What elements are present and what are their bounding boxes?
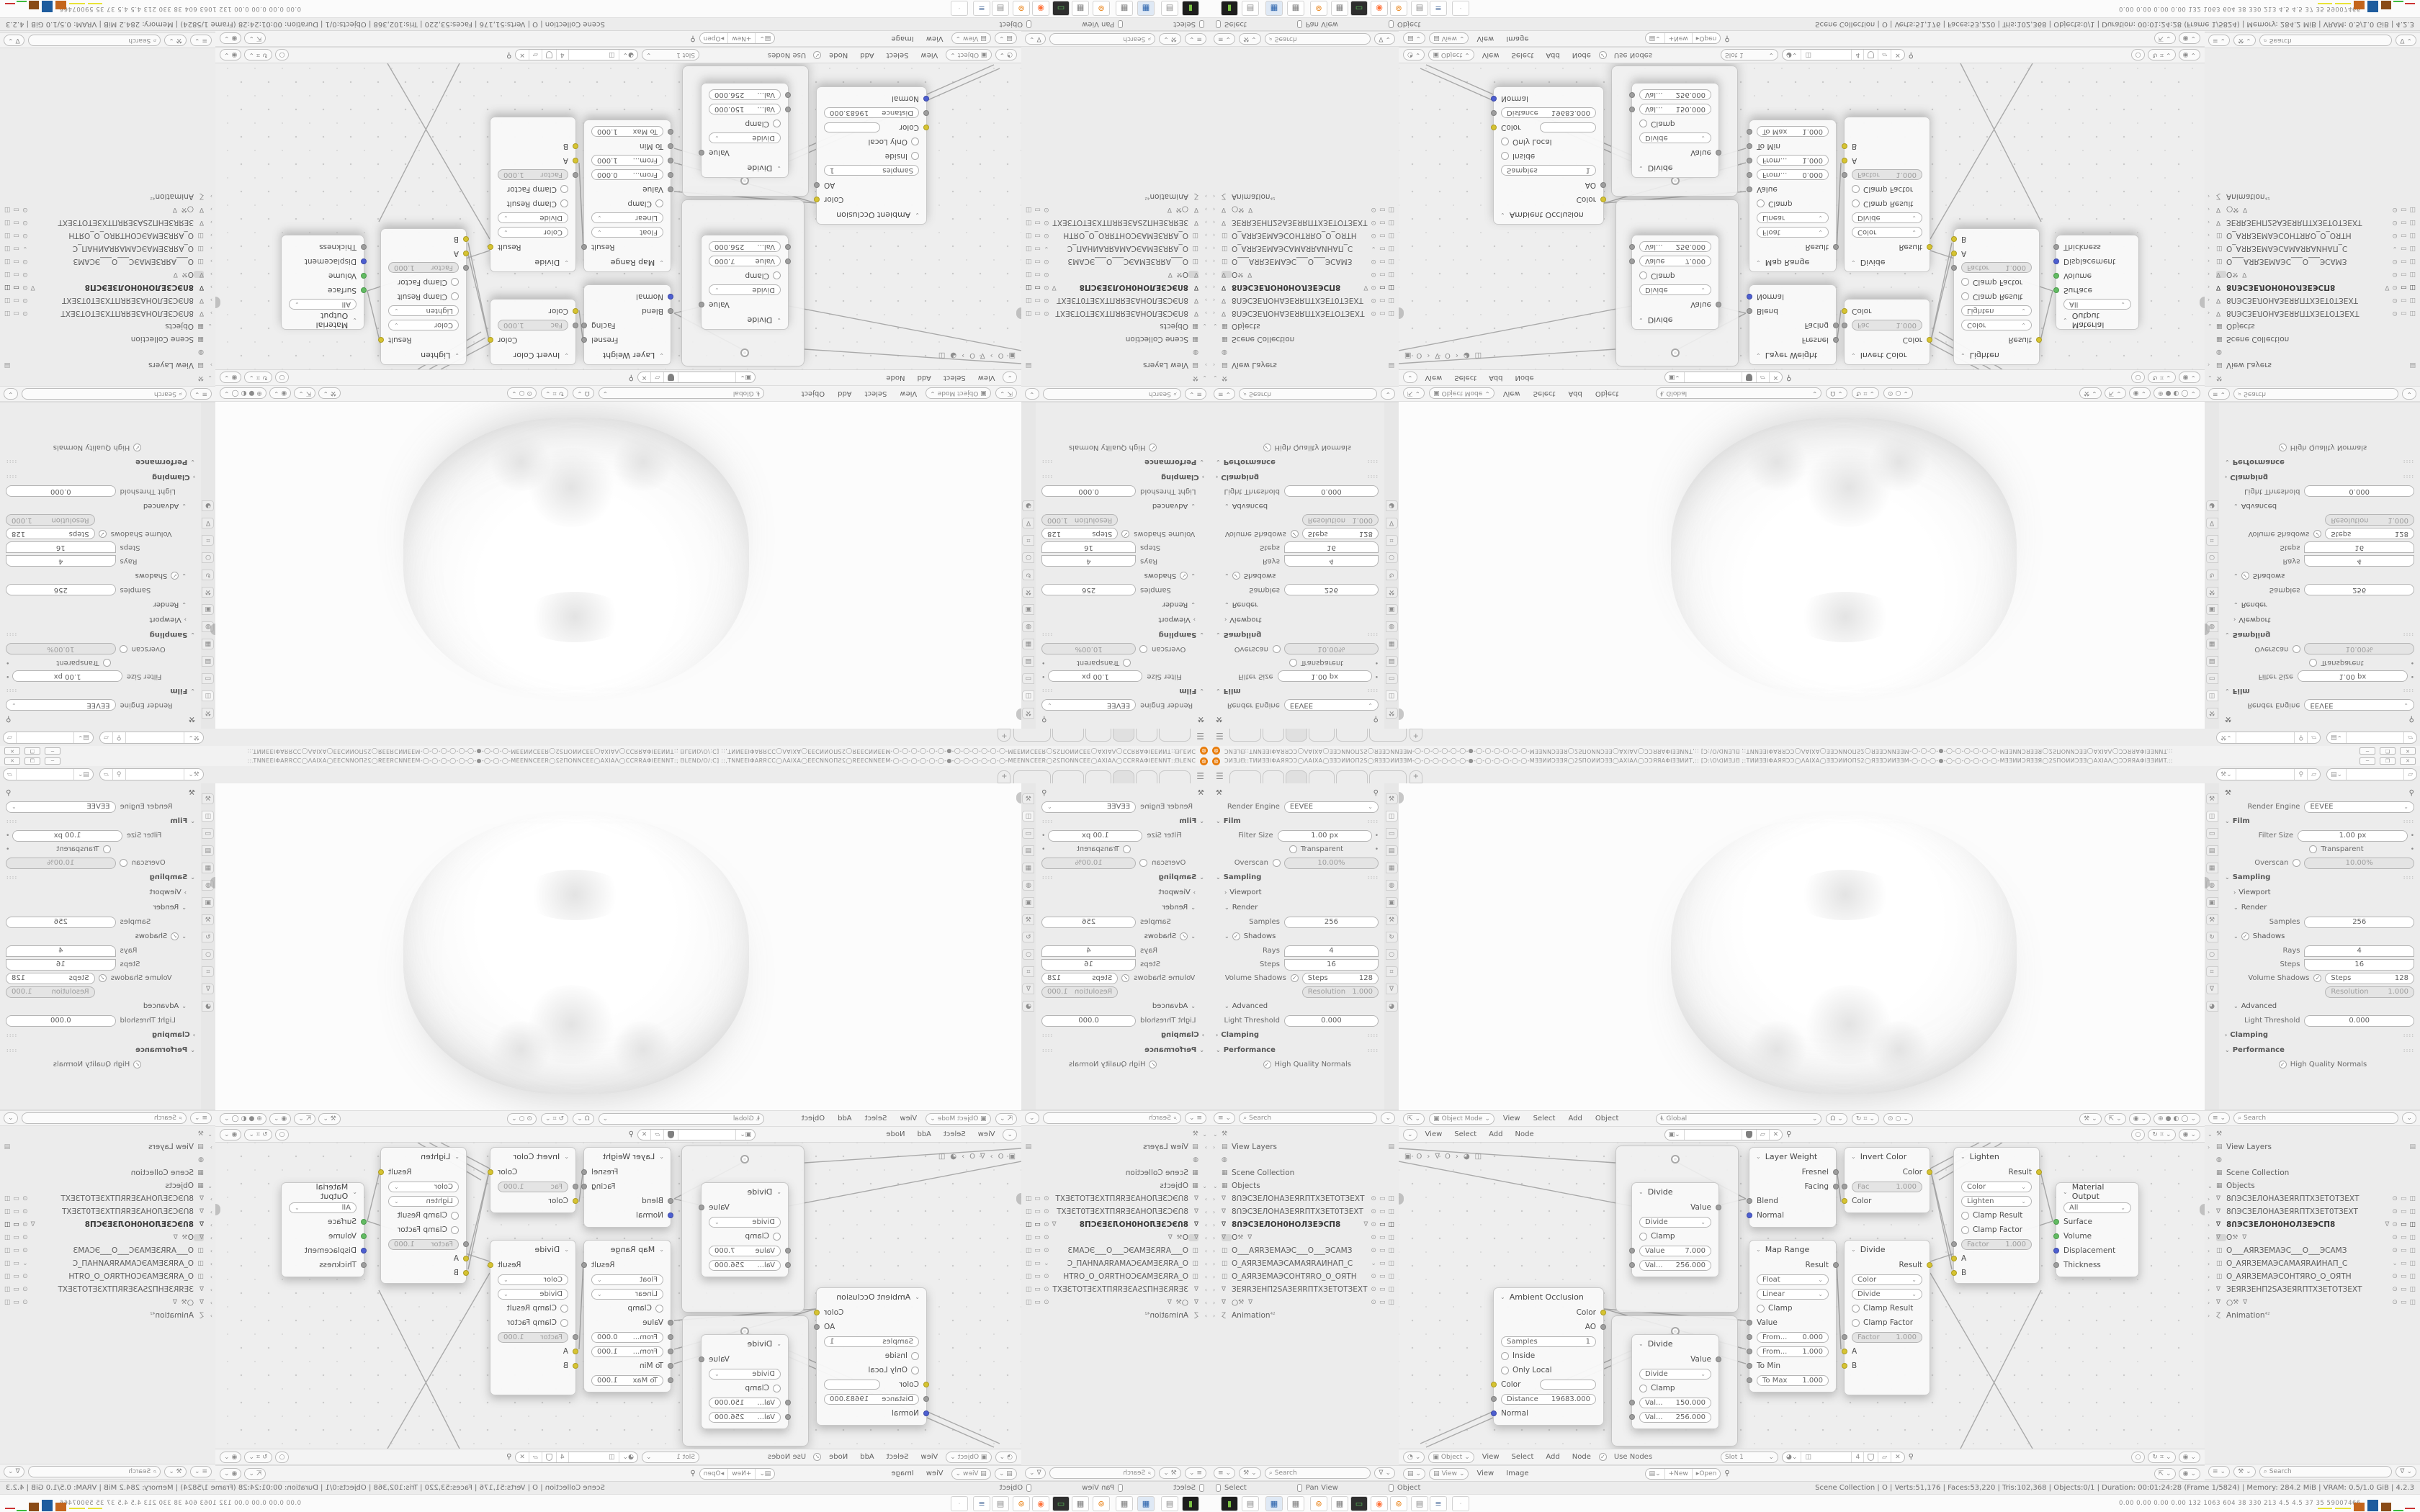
menu-view[interactable]: View xyxy=(1425,1130,1443,1138)
camera-row[interactable]: › ◫O_AЯRЗЕМАЭСОНТЯRО_O_ОЯТН ⊙▭◫ xyxy=(0,229,215,242)
workspace-tab[interactable] xyxy=(1369,770,1407,783)
node-lighten[interactable]: ⌄Lighten Result Color⌄ Lighten⌄ Clamp Re… xyxy=(380,228,467,365)
clamp-checkbox[interactable] xyxy=(1639,120,1647,128)
monitor-app-icon[interactable]: ▭ xyxy=(1350,1496,1368,1511)
save64-app-icon[interactable]: ▦ xyxy=(1137,1,1155,16)
view-layers-row[interactable]: › ▤View Layers ▤ xyxy=(2205,359,2420,372)
resolution-field[interactable]: Resolution 1.000 xyxy=(2325,515,2414,526)
camera-row[interactable]: › ◫O___AЯRЗЕМАЭС___O___ЭСАМЗ ⊙▭◫ xyxy=(1021,1244,1210,1257)
transparent-checkbox[interactable] xyxy=(103,659,111,667)
material-selector[interactable]: ◕⌄ ◫ 4 ▱ ✕ xyxy=(1782,50,1905,61)
object-row-selected[interactable]: › ∇O ⚒∇ ⊙▭◫ xyxy=(0,1231,215,1244)
select-visibility-button[interactable]: ⚒⌄ xyxy=(2079,388,2102,400)
samples-field[interactable]: 256 xyxy=(6,917,116,928)
show-gizmo-button[interactable]: ⇱⌄ xyxy=(2105,1113,2126,1125)
material-selector[interactable]: ▣⌄ ▱ ✕ xyxy=(1664,1129,1783,1140)
pivot-button[interactable]: ⊙○⌄ xyxy=(507,1113,537,1125)
pin-icon[interactable]: ⚲ xyxy=(1909,1453,1914,1461)
calculator-app-icon[interactable]: ▦ xyxy=(1331,1496,1348,1511)
copy-icon[interactable]: ▱ xyxy=(2308,769,2320,780)
advanced-section[interactable]: ⌄ Advanced xyxy=(6,999,195,1014)
blender-app-icon[interactable]: ⊚ xyxy=(1093,1496,1110,1511)
camera-row[interactable]: › ◫O___AЯRЗЕМАЭС___O___ЭСАМЗ ⊙▭◫ xyxy=(0,255,215,268)
node-map-range[interactable]: ⌄Map Range Result Float⌄ Linear⌄ Clamp V… xyxy=(583,1240,671,1392)
film-section[interactable]: ⌄ Film:::: xyxy=(2225,814,2414,829)
sampling-section[interactable]: ⌄ Sampling:::: xyxy=(2225,870,2414,885)
objects-collection-row[interactable]: ⌄ ▦Objects xyxy=(2205,1179,2420,1192)
pin-icon[interactable]: ⚲ xyxy=(1041,715,1047,723)
select-visibility-button[interactable]: ⚒⌄ xyxy=(318,1113,341,1125)
snap-button[interactable]: ↻⌗⌄ xyxy=(2148,372,2175,384)
node-invert-color[interactable]: ⌄Invert Color Color Fac 1.000 Color xyxy=(490,299,576,365)
overscan-field[interactable]: 10.00% xyxy=(2304,858,2414,869)
render-subsection[interactable]: ⌄ Render xyxy=(2225,900,2414,915)
transparent-checkbox[interactable] xyxy=(1289,845,1297,853)
rays-field[interactable]: 4 xyxy=(6,945,116,957)
workspace-tab[interactable] xyxy=(1263,729,1284,742)
object-row[interactable]: › ∇8ՈЭСЗЕЛОНАЗЕЯRПТХЗЕТ0ТЗЕХТ ⊙▭◫ xyxy=(1021,294,1210,307)
sampling-section[interactable]: ⌄ Sampling:::: xyxy=(1041,627,1204,642)
steps-field[interactable]: 16 xyxy=(2304,959,2414,971)
animation-row[interactable]: › ⱿAnimation ⁴² xyxy=(1021,1309,1210,1322)
operation-select[interactable]: Divide⌄ xyxy=(1639,285,1711,296)
steps-field[interactable]: 16 xyxy=(1041,542,1136,554)
blender-app-icon[interactable]: ⊚ xyxy=(1390,1,1407,16)
mode-select[interactable]: ▣Object Mode⌄ xyxy=(1429,388,1494,400)
steps-field[interactable]: 16 xyxy=(1041,959,1136,971)
node-material-output[interactable]: ⌄Material Output All⌄ Surface Volume Dis… xyxy=(281,1182,364,1277)
copy-icon[interactable]: ▱ xyxy=(2404,732,2416,743)
viewport-subsection[interactable]: › Viewport xyxy=(1216,612,1379,627)
minimize-button[interactable]: ─ xyxy=(2359,757,2375,765)
viewlayer-id-selector[interactable]: ▤⌄ ▱ xyxy=(2326,768,2417,780)
camera-row[interactable]: › ◫O_AЯRЗЕМАЭСОНТЯRО_O_ОЯТН ⊙▭◫ xyxy=(2205,1270,2420,1283)
open-image-button[interactable]: ▸ Open xyxy=(1693,34,1721,44)
editor-type-button[interactable]: ◔⌄ xyxy=(995,50,1017,61)
properties-tab-strip[interactable]: ⚒◫▭ ▤▦◍ ▣⚒↻ ○⌗∇ ◕ xyxy=(201,783,215,1110)
rays-field[interactable]: 4 xyxy=(1041,945,1136,957)
performance-section[interactable]: ⌄ Performance:::: xyxy=(1216,1043,1379,1058)
filter-toggle[interactable]: ⌄ xyxy=(1025,1112,1039,1124)
region-toggle[interactable] xyxy=(2200,1204,2205,1215)
object-row[interactable]: › ∇8ՈЭСЗЕЛОНАЗЕЯRПТХЗЕТОТЗЕХТ ⊙▭◫ xyxy=(0,307,215,320)
camera-row[interactable]: › ◫O_AЯRЗЕМАЭСОНТЯRО_O_ОЯТН ⊙▭◫ xyxy=(1210,1270,1399,1283)
display-mode-button[interactable]: ≡⌄ xyxy=(1185,1467,1206,1479)
pin-icon[interactable]: ⚲ xyxy=(2295,769,2308,780)
snap-button[interactable]: ↻⌗⌄ xyxy=(244,372,272,384)
firefox-app-icon[interactable]: ◉ xyxy=(1032,1,1049,16)
copy-icon[interactable]: ▱ xyxy=(4,769,16,780)
overscan-field[interactable]: 10.00% xyxy=(2304,644,2414,655)
animation-row[interactable]: › ⱿAnimation ⁴² xyxy=(1210,190,1399,203)
funnel-filter-button[interactable]: ∇⌄ xyxy=(1374,1467,1395,1479)
pin-icon[interactable]: ⚲ xyxy=(1373,715,1379,723)
volume-steps-field[interactable]: Steps 128 xyxy=(2325,973,2414,984)
node-divide-2[interactable]: ⌄Divide Result Color⌄ Divide⌄ Clamp Resu… xyxy=(490,117,576,272)
snap-toggle[interactable]: Ω⌄ xyxy=(1826,388,1847,400)
material-selector[interactable]: ▣⌄ ▱ ✕ xyxy=(1664,372,1783,384)
node-map-range[interactable]: ⌄Map Range Result Float⌄ Linear⌄ Clamp V… xyxy=(1749,1240,1837,1392)
overscan-field[interactable]: 10.00% xyxy=(1284,858,1379,869)
workspace-tab-active[interactable] xyxy=(1113,729,1134,742)
resolution-field[interactable]: Resolution 1.000 xyxy=(1302,515,1379,526)
menu-view[interactable]: View xyxy=(1425,374,1443,382)
animation-row[interactable]: › ⱿAnimation ⁴² xyxy=(1210,1309,1399,1322)
overscan-checkbox[interactable] xyxy=(2293,859,2300,867)
node-divide-1[interactable]: ⌄Divide Value Divide⌄ Clamp Value 7.000 … xyxy=(701,235,789,330)
clamping-section[interactable]: › Clamping:::: xyxy=(2225,1027,2414,1043)
fake-user-toggle[interactable] xyxy=(1868,1454,1874,1461)
funnel-filter-button[interactable]: ∇⌄ xyxy=(1025,33,1046,45)
notepad-app-icon[interactable]: ▤ xyxy=(1411,1496,1428,1511)
proportional-edit-button[interactable]: ↻⌗⌄ xyxy=(1852,1113,1879,1125)
region-toggle[interactable] xyxy=(210,877,215,888)
workspace-tab[interactable] xyxy=(1085,729,1111,742)
node-divide-1b[interactable]: ⌄Divide Value Divide⌄ Clamp Val... 150.0… xyxy=(701,83,789,178)
monitor-app-icon[interactable]: ▭ xyxy=(1052,1496,1070,1511)
maximize-button[interactable]: ❐ xyxy=(2380,757,2396,765)
copy-icon[interactable]: ▱ xyxy=(650,1130,663,1140)
display-mode-button[interactable]: ≡⌄ xyxy=(1185,33,1206,45)
node-ambient-occlusion[interactable]: ⌄Ambient Occlusion Color AO Samples 1 In… xyxy=(1493,86,1604,225)
filter-size-field[interactable]: 1.00 px xyxy=(1278,671,1372,683)
minimize-button[interactable]: ─ xyxy=(45,747,60,755)
operation-select[interactable]: Divide⌄ xyxy=(1639,1369,1711,1380)
copy-icon[interactable]: ▱ xyxy=(1878,1452,1891,1462)
object-row[interactable]: › ∇○ ⚒∇ ⊙▭◫ xyxy=(1021,1296,1210,1309)
pivot-button[interactable]: ⊙○⌄ xyxy=(1883,388,1913,400)
camera-row[interactable]: › ◫O_AЯRЗЕМАЭСАМАЯRАИНАП_С ⌄▭◫ xyxy=(0,1257,215,1270)
menu-add[interactable]: Add xyxy=(917,374,931,382)
object-row-active[interactable]: › ∇8ՈЭСЗЕЛОН0НОЛЗЕЭСП8 ∇⊙▭◫ xyxy=(2205,1218,2420,1231)
menu-node[interactable]: Node xyxy=(1515,374,1534,382)
snap-toggle[interactable]: Ω⌄ xyxy=(573,1113,593,1125)
object-row[interactable]: › ∇8ՈЭСЗЕЛОНАЗЕЯRПТХЗЕТОТЗЕХТ ⊙▭◫ xyxy=(2205,1192,2420,1205)
add-workspace-button[interactable]: + xyxy=(998,729,1010,742)
pivot-button[interactable]: ⊙○⌄ xyxy=(507,388,537,400)
material-selector[interactable]: ◕⌄ ◫ 4 ▱ ✕ xyxy=(1782,1452,1905,1463)
node-divide-1[interactable]: ⌄Divide Value Divide⌄ Clamp Value 7.000 … xyxy=(701,1182,789,1277)
camera-row[interactable]: › ◫O___AЯRЗЕМАЭС___O___ЭСАМЗ ⊙▭◫ xyxy=(0,1244,215,1257)
object-row[interactable]: › ∇○ ⚒∇ ⊙▭◫ xyxy=(0,1296,215,1309)
clamping-section[interactable]: › Clamping:::: xyxy=(6,469,195,485)
snap-toggle[interactable]: Ω⌄ xyxy=(573,388,593,400)
material-selector[interactable]: ◕⌄ ◫ 4 ▱ ✕ xyxy=(515,50,638,61)
properties-tab-strip[interactable]: ⚒◫▭ ▤▦◍ ▣⚒↻ ○⌗∇ ◕ xyxy=(1384,783,1399,1110)
search-input[interactable]: ⌕Search xyxy=(1239,1112,1377,1124)
image-mode-select[interactable]: ▤View⌄ xyxy=(1429,1468,1469,1480)
samples-field[interactable]: 256 xyxy=(1284,585,1379,596)
fake-user-toggle[interactable] xyxy=(668,374,674,382)
samples-field[interactable]: 256 xyxy=(6,585,116,596)
viewport-subsection[interactable]: › Viewport xyxy=(1041,885,1204,900)
viewlayer-id-selector[interactable]: ▤⌄ ▱ xyxy=(3,732,94,744)
light-threshold-field[interactable]: 0.000 xyxy=(6,1015,116,1027)
notepad-app-icon[interactable]: ▤ xyxy=(992,1496,1009,1511)
filter-mode-button[interactable]: ⚒⌄ xyxy=(1239,1467,1261,1479)
terminal-app-icon[interactable]: ▮ xyxy=(1221,1496,1238,1511)
maximize-button[interactable]: ❐ xyxy=(24,747,40,755)
film-section[interactable]: ⌄ Film:::: xyxy=(1216,814,1379,829)
blend-select[interactable]: Lighten⌄ xyxy=(388,306,459,317)
unlink-button[interactable]: ✕ xyxy=(638,373,651,383)
viewport-subsection[interactable]: › Viewport xyxy=(2225,612,2414,627)
search-input[interactable]: ⌕Search xyxy=(1265,1467,1371,1479)
blender-app-icon[interactable]: ⊚ xyxy=(1310,1496,1327,1511)
object-row[interactable]: › ∇○ ⚒∇ ⊙▭◫ xyxy=(2205,203,2420,216)
calculator-app-icon[interactable]: ▦ xyxy=(1116,1,1133,16)
advanced-section[interactable]: ⌄ Advanced xyxy=(1216,999,1379,1014)
editor-type-button[interactable]: ⇱⌄ xyxy=(995,1113,1017,1125)
camera-row[interactable]: › ◫O_AЯRЗЕМАЭСОНТЯRО_O_ОЯТН ⊙▭◫ xyxy=(2205,229,2420,242)
overlays-button[interactable]: ◉⌄ xyxy=(2179,372,2200,384)
workspace-tab[interactable] xyxy=(1309,729,1335,742)
new-image-button[interactable]: + New xyxy=(727,34,755,44)
menu-select[interactable]: Select xyxy=(865,390,887,397)
search-input[interactable]: ⌕Search xyxy=(22,1112,187,1124)
region-toggle[interactable] xyxy=(2200,297,2205,308)
pin-icon[interactable]: ⚲ xyxy=(2409,715,2414,723)
render-subsection[interactable]: ⌄ Render xyxy=(2225,597,2414,612)
target-select[interactable]: All⌄ xyxy=(2063,300,2131,310)
node-divide-1b[interactable]: ⌄Divide Value Divide⌄ Clamp Val... 150.0… xyxy=(1631,1334,1719,1429)
render-subsection[interactable]: ⌄ Render xyxy=(1216,900,1379,915)
show-gizmo-button[interactable]: ⇱⌄ xyxy=(2105,388,2126,400)
workspace-tab[interactable] xyxy=(1369,729,1407,742)
performance-section[interactable]: ⌄ Performance:::: xyxy=(2225,1043,2414,1058)
pin-icon[interactable]: ⚲ xyxy=(629,374,634,382)
menu-add[interactable]: Add xyxy=(1489,374,1502,382)
copy-icon[interactable]: ▱ xyxy=(2308,732,2320,743)
shadows-section[interactable]: ⌄ ✓Shadows xyxy=(6,929,195,944)
steps-field[interactable]: 16 xyxy=(6,959,116,971)
color-swatch[interactable] xyxy=(824,1380,880,1390)
camera-row[interactable]: › ◫O_AЯRЗЕМАЭСАМАЯRАИНАП_С ⌄▭◫ xyxy=(0,242,215,255)
unlink-button[interactable]: ✕ xyxy=(638,1130,651,1140)
copy-icon[interactable]: ▱ xyxy=(100,732,112,743)
object-row-active[interactable]: › ∇8ՈЭСЗЕЛОН0НОЛЗЕЭСП8 ∇⊙▭◫ xyxy=(0,1218,215,1231)
menu-object[interactable]: Object xyxy=(802,1115,825,1122)
object-row-selected[interactable]: › ∇O ⚒∇ ⊙▭◫ xyxy=(2205,1231,2420,1244)
outliner-display-mode[interactable]: ≡⌄ xyxy=(1185,1112,1206,1124)
pin-icon[interactable]: ⚲ xyxy=(1041,789,1047,797)
proportional-edit-button[interactable]: ↻⌗⌄ xyxy=(541,388,568,400)
fake-user-toggle[interactable] xyxy=(1746,1131,1752,1138)
object-row-active[interactable]: › ∇8ՈЭСЗЕЛОН0НОЛЗЕЭСП8 ∇⊙▭◫ xyxy=(1021,1218,1210,1231)
operation-select[interactable]: Divide⌄ xyxy=(1639,1217,1711,1228)
light-threshold-field[interactable]: 0.000 xyxy=(1284,1015,1379,1027)
filter-size-field[interactable]: 1.00 px xyxy=(1048,671,1142,683)
search-input[interactable]: ⌕Search xyxy=(28,35,161,46)
workspace-tab[interactable] xyxy=(1229,770,1261,783)
operation-select[interactable]: Divide⌄ xyxy=(709,1369,781,1380)
region-toggle[interactable] xyxy=(210,624,215,635)
render-engine-select[interactable]: EEVEE⌄ xyxy=(6,700,116,711)
node-canvas[interactable]: ▣O ›∇ O› ◕◫ ⌄Divide Value Divide⌄ Clamp xyxy=(1399,1143,2205,1449)
menu-view[interactable]: View xyxy=(978,374,995,382)
slot-select[interactable]: Slot 1⌄ xyxy=(642,1452,699,1463)
editor-type-button[interactable]: ▤⌄ xyxy=(1403,33,1425,45)
performance-section[interactable]: ⌄ Performance:::: xyxy=(1041,454,1204,469)
pin-icon[interactable]: ⚲ xyxy=(1373,789,1379,797)
terminal-app-icon[interactable]: ▮ xyxy=(1221,1,1238,16)
object-row-selected[interactable]: › ∇O ⚒∇ ⊙▭◫ xyxy=(1021,268,1210,281)
node-ambient-occlusion[interactable]: ⌄Ambient Occlusion Color AO Samples 1 In… xyxy=(1493,1287,1604,1426)
shader-type-select[interactable]: ▣Object⌄ xyxy=(1428,1452,1474,1463)
image-mode-select[interactable]: ▤View⌄ xyxy=(951,33,991,45)
region-toggle[interactable] xyxy=(1399,1193,1404,1205)
sampling-section[interactable]: ⌄ Sampling:::: xyxy=(2225,627,2414,642)
camera-row[interactable]: › ◫O_AЯRЗЕМАЭСОНТЯRО_O_ОЯТН ⊙▭◫ xyxy=(1210,229,1399,242)
show-gizmo-button[interactable]: ⇱⌄ xyxy=(294,388,315,400)
object-row[interactable]: › ∇8ՈЭСЗЕЛОНАЗЕЯRПТХЗЕТОТЗЕХТ ⊙▭◫ xyxy=(2205,307,2420,320)
parent-toggle[interactable]: ○ xyxy=(275,372,290,384)
render-subsection[interactable]: ⌄ Render xyxy=(6,900,195,915)
firefox-app-icon[interactable]: ◉ xyxy=(1371,1,1388,16)
clamping-section[interactable]: › Clamping:::: xyxy=(6,1027,195,1043)
mode-select[interactable]: ▣Object Mode⌄ xyxy=(1429,1113,1494,1125)
render-engine-select[interactable]: EEVEE⌄ xyxy=(2304,700,2414,711)
blend-select[interactable]: Lighten⌄ xyxy=(388,1196,459,1207)
object-row[interactable]: › ∇ЗЕЯRЗЕНП2SАЗЕЯRПТХЗЕТОТЗЕХТ ⊙▭◫ xyxy=(0,1283,215,1296)
notepad-app-icon[interactable]: ▤ xyxy=(1161,1496,1178,1511)
menu-add[interactable]: Add xyxy=(917,1130,931,1138)
shadows-section[interactable]: ⌄ ✓Shadows xyxy=(1216,929,1379,944)
clamp-checkbox[interactable] xyxy=(773,272,781,280)
document-app-icon[interactable]: ≡ xyxy=(973,1496,990,1511)
workspace-tab-active[interactable] xyxy=(1286,770,1307,783)
performance-section[interactable]: ⌄ Performance:::: xyxy=(6,1043,195,1058)
camera-row[interactable]: › ◫O_AЯRЗЕМАЭСАМАЯRАИНАП_С ⌄▭◫ xyxy=(2205,242,2420,255)
shadows-section[interactable]: ⌄ ✓Shadows xyxy=(2225,929,2414,944)
object-row[interactable]: › ∇8ՈЭСЗЕЛОНАЗЕЯRПТХЗЕТОТЗЕХТ ⊙▭◫ xyxy=(1210,307,1399,320)
save64-app-icon[interactable]: ▦ xyxy=(1265,1,1283,16)
material-selector[interactable]: ◕⌄ ◫ 4 ▱ ✕ xyxy=(515,1452,638,1463)
resolution-field[interactable]: Resolution 1.000 xyxy=(6,515,95,526)
node-lighten[interactable]: ⌄Lighten Result Color⌄ Lighten⌄ Clamp Re… xyxy=(380,1147,467,1284)
overscan-field[interactable]: 10.00% xyxy=(1041,644,1136,655)
transparent-checkbox[interactable] xyxy=(2309,659,2317,667)
steps-field[interactable]: 16 xyxy=(2304,542,2414,554)
editor-type-button[interactable]: ⇱⌄ xyxy=(995,388,1017,400)
render-engine-select[interactable]: EEVEE⌄ xyxy=(1284,801,1379,813)
show-gizmo-button[interactable]: ⇱⌄ xyxy=(294,1113,315,1125)
editor-type-button[interactable]: ◔⌄ xyxy=(995,1452,1017,1463)
node-invert-color[interactable]: ⌄Invert Color Color Fac 1.000 Color xyxy=(1844,1147,1930,1213)
type-select[interactable]: Color⌄ xyxy=(388,320,459,331)
clamp-checkbox[interactable] xyxy=(773,120,781,128)
advanced-section[interactable]: ⌄ Advanced xyxy=(1041,498,1204,513)
camera-row[interactable]: › ◫O_AЯRЗЕМАЭСАМАЯRАИНАП_С ⌄▭◫ xyxy=(1210,1257,1399,1270)
new-image-button[interactable]: + New xyxy=(1665,34,1693,44)
object-row[interactable]: › ∇ЗЕЯRЗЕНП2SАЗЕЯRПТХЗЕТОТЗЕХТ ⊙▭◫ xyxy=(1210,216,1399,229)
add-workspace-button[interactable]: + xyxy=(1410,770,1422,783)
object-row[interactable]: › ∇○ ⚒∇ ⊙▭◫ xyxy=(1021,203,1210,216)
workspace-tab[interactable] xyxy=(1263,770,1284,783)
scene-collection-row[interactable]: ▦Scene Collection xyxy=(0,333,215,346)
overlays-button[interactable]: ◉⌄ xyxy=(220,372,241,384)
animation-row[interactable]: › ⱿAnimation ⁴² xyxy=(2205,190,2420,203)
rays-field[interactable]: 4 xyxy=(1041,556,1136,567)
object-row[interactable]: › ∇8ՈЭСЗЕЛОНАЗЕЯRПТХЗЕТОТЗЕХТ ⊙▭◫ xyxy=(1210,1192,1399,1205)
viewlayer-id-selector[interactable]: ▤⌄ ▱ xyxy=(3,768,94,780)
menu-icon[interactable]: ☰ xyxy=(1216,771,1224,781)
viewport-3d[interactable] xyxy=(215,402,1021,729)
clamp-checkbox[interactable] xyxy=(773,1233,781,1241)
light-threshold-field[interactable]: 0.000 xyxy=(1041,1015,1136,1027)
volume-steps-field[interactable]: Steps 128 xyxy=(6,528,95,540)
objects-collection-row[interactable]: ⌄ ▦Objects xyxy=(0,1179,215,1192)
overlays-button[interactable]: ◉⌄ xyxy=(220,1129,241,1140)
fake-user-toggle[interactable] xyxy=(546,52,552,59)
menu-select[interactable]: Select xyxy=(1454,374,1476,382)
outliner-display-mode[interactable]: ≡⌄ xyxy=(1214,1112,1235,1124)
camera-row[interactable]: › ◫O_AЯRЗЕМАЭСОНТЯRО_O_ОЯТН ⊙▭◫ xyxy=(1021,229,1210,242)
shading-mode-buttons[interactable]: ⊕● ◐◯ ⌄ xyxy=(220,388,266,400)
filter-size-field[interactable]: 1.00 px xyxy=(2298,830,2408,842)
shader-type-select[interactable]: ▣Object⌄ xyxy=(946,1452,991,1463)
search-input[interactable]: ⌕Search xyxy=(2233,388,2398,400)
mode-select[interactable]: ▣Object Mode⌄ xyxy=(926,388,991,400)
editor-type-button[interactable]: ◔⌄ xyxy=(1403,1452,1425,1463)
shadows-section[interactable]: ⌄ ✓Shadows xyxy=(1216,568,1379,583)
overscan-checkbox[interactable] xyxy=(120,859,127,867)
advanced-section[interactable]: ⌄ Advanced xyxy=(6,498,195,513)
new-image-button[interactable]: + New xyxy=(1665,1469,1693,1479)
scene-id-selector[interactable]: ⚒⌄ ⚲ ▱ xyxy=(99,768,204,780)
object-row-selected[interactable]: › ∇O ⚒∇ ⊙▭◫ xyxy=(1021,1231,1210,1244)
performance-section[interactable]: ⌄ Performance:::: xyxy=(1041,1043,1204,1058)
editor-type-button[interactable]: ⇱⌄ xyxy=(1403,1113,1425,1125)
camera-row[interactable]: › ◫O___AЯRЗЕМАЭС___O___ЭСАМЗ ⊙▭◫ xyxy=(1021,255,1210,268)
viewport-subsection[interactable]: › Viewport xyxy=(1041,612,1204,627)
samples-field[interactable]: 256 xyxy=(1284,917,1379,928)
inactive-app-icon[interactable]: · xyxy=(951,1496,968,1511)
node-divide-1b[interactable]: ⌄Divide Value Divide⌄ Clamp Val... 150.0… xyxy=(1631,83,1719,178)
object-row[interactable]: › ∇○ ⚒∇ ⊙▭◫ xyxy=(0,203,215,216)
overscan-field[interactable]: 10.00% xyxy=(6,858,116,869)
shading-mode-buttons[interactable]: ⊕● ◐◯ ⌄ xyxy=(2154,388,2200,400)
search-input[interactable]: ⌕Search xyxy=(28,1466,161,1477)
shading-mode-buttons[interactable]: ⊕● ◐◯ ⌄ xyxy=(2154,1113,2200,1125)
viewport-3d[interactable] xyxy=(1399,783,2205,1110)
menu-select[interactable]: Select xyxy=(1533,390,1556,397)
clamping-section[interactable]: › Clamping:::: xyxy=(1041,469,1204,485)
new-image-button[interactable]: + New xyxy=(727,1469,755,1479)
advanced-section[interactable]: ⌄ Advanced xyxy=(1041,999,1204,1014)
object-row[interactable]: › ∇ЗЕЯRЗЕНП2SАЗЕЯRПТХЗЕТОТЗЕХТ ⊙▭◫ xyxy=(2205,216,2420,229)
object-row-active[interactable]: › ∇8ՈЭСЗЕЛОН0НОЛЗЕЭСП8 ∇⊙▭◫ xyxy=(1210,281,1399,294)
pin-icon[interactable]: ⚲ xyxy=(112,769,125,780)
filter-size-field[interactable]: 1.00 px xyxy=(1048,830,1142,842)
overlays-button[interactable]: ◉⌄ xyxy=(269,388,291,400)
transparent-checkbox[interactable] xyxy=(1289,659,1297,667)
clamping-section[interactable]: › Clamping:::: xyxy=(1041,1027,1204,1043)
reroute-node[interactable] xyxy=(740,348,749,357)
pin-icon[interactable]: ⚲ xyxy=(1786,374,1791,382)
blender-app-icon[interactable]: ⊚ xyxy=(1310,1,1327,16)
use-nodes-toggle[interactable]: Use Nodes xyxy=(1614,51,1652,59)
node-canvas[interactable]: ▣O ›∇ O› ◕◫ ⌄Divide Value Divide⌄ Clamp xyxy=(215,1143,1021,1449)
pin-icon[interactable]: ⚲ xyxy=(690,1470,695,1477)
film-section[interactable]: ⌄ Film:::: xyxy=(1041,814,1204,829)
steps-field[interactable]: 16 xyxy=(1284,542,1379,554)
overlays-button[interactable]: ◉⌄ xyxy=(269,1113,291,1125)
color-swatch[interactable] xyxy=(1540,122,1596,132)
workspace-tab[interactable] xyxy=(1052,729,1084,742)
menu-node[interactable]: Node xyxy=(1515,1130,1534,1138)
menu-select[interactable]: Select xyxy=(944,374,966,382)
